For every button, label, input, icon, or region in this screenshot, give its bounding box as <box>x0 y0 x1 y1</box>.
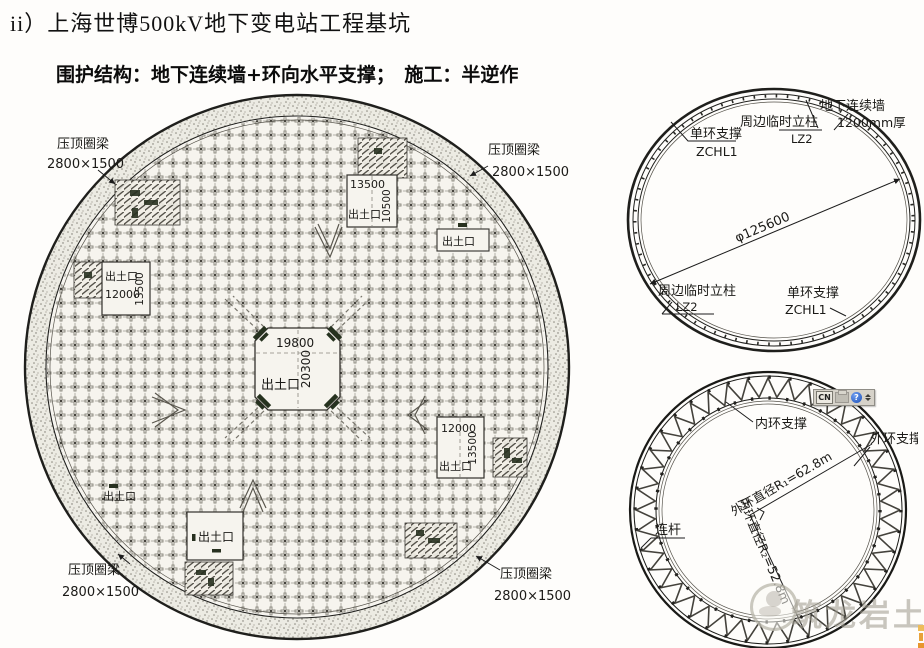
dim-left-height: 13500 <box>134 272 146 305</box>
opening-top-label: 出土口 <box>348 207 381 221</box>
opening-center-label: 出土口 <box>261 378 300 393</box>
ring-beam-size-tl: 2800×1500 <box>47 157 124 172</box>
opening-right: 12000 出土口 13500 <box>437 417 484 478</box>
dim-right-height: 13500 <box>467 431 479 464</box>
support-label-top: 单环支撑 <box>690 127 742 142</box>
page-title: ii）上海世博500kV地下变电站工程基坑 <box>10 6 411 38</box>
support-label-bottom: 单环支撑 <box>787 286 839 301</box>
ring-beam-label-br: 压顶圈梁 <box>500 567 552 582</box>
column-label-bottom: 周边临时立柱 <box>658 284 736 299</box>
watermark-text: 筑龙岩土 <box>791 590 924 635</box>
help-icon[interactable]: ? <box>851 392 862 403</box>
edge-fragment <box>917 625 924 648</box>
wall-thickness: 1200mm厚 <box>837 115 906 130</box>
printer-icon[interactable] <box>835 392 849 403</box>
column-code-top: LZ2 <box>791 132 813 146</box>
dim-top-height: 10500 <box>381 189 393 222</box>
inner-support-label: 内环支撑 <box>755 416 807 432</box>
opening-bottom-small-label: 出土口 <box>103 489 136 503</box>
column-label-top: 周边临时立柱 <box>740 115 818 130</box>
diameter-dimension: φ125600 <box>650 179 900 284</box>
support-code-top: ZCHL1 <box>696 144 738 159</box>
ring-beam-label-tr: 压顶圈梁 <box>488 143 540 158</box>
single-ring-labels: 单环支撑 ZCHL1 周边临时立柱 LZ2 地下连续墙 1200mm厚 周边临时… <box>658 98 906 317</box>
opening-top: 13500 出土口 10500 <box>347 175 397 227</box>
main-pit-plan-drawing: 13500 出土口 10500 出土口 出土口 12000 13500 <box>12 86 592 646</box>
tie-rod-label: 连杆 <box>655 522 681 538</box>
column-code-bottom: LZ2 <box>676 300 698 314</box>
single-ring-plan-drawing: φ125600 单环支撑 ZCHL1 周边临时立柱 LZ2 地下连续墙 1200… <box>616 84 924 356</box>
language-bar[interactable]: CN ? <box>813 389 875 406</box>
ring-beam-size-bl: 2800×1500 <box>62 585 139 600</box>
language-indicator[interactable]: CN <box>816 391 833 404</box>
dim-center-width: 19800 <box>276 336 314 350</box>
ring-beam-size-tr: 2800×1500 <box>492 165 569 180</box>
opening-bottom: 出土口 <box>187 512 243 560</box>
ring-beam-size-br: 2800×1500 <box>494 589 571 604</box>
toolbar-options-spinner[interactable] <box>864 394 872 401</box>
opening-left: 出土口 12000 13500 <box>102 262 150 315</box>
dim-top-width: 13500 <box>350 178 385 191</box>
page-subtitle: 围护结构：地下连续墙+环向水平支撑； 施工：半逆作 <box>56 60 518 87</box>
support-code-bottom: ZCHL1 <box>785 302 827 317</box>
opening-center: 19800 出土口 20300 <box>253 326 342 412</box>
dim-center-height: 20300 <box>299 350 313 388</box>
wall-label: 地下连续墙 <box>820 98 885 114</box>
slide: ii）上海世博500kV地下变电站工程基坑 围护结构：地下连续墙+环向水平支撑；… <box>0 0 924 648</box>
opening-top-small-label: 出土口 <box>442 234 475 248</box>
ring-beam-label-bl: 压顶圈梁 <box>68 563 120 578</box>
outer-support-label: 外环支撑 <box>870 432 918 447</box>
opening-bottom-label: 出土口 <box>198 530 234 544</box>
ring-beam-label-tl: 压顶圈梁 <box>57 137 109 152</box>
